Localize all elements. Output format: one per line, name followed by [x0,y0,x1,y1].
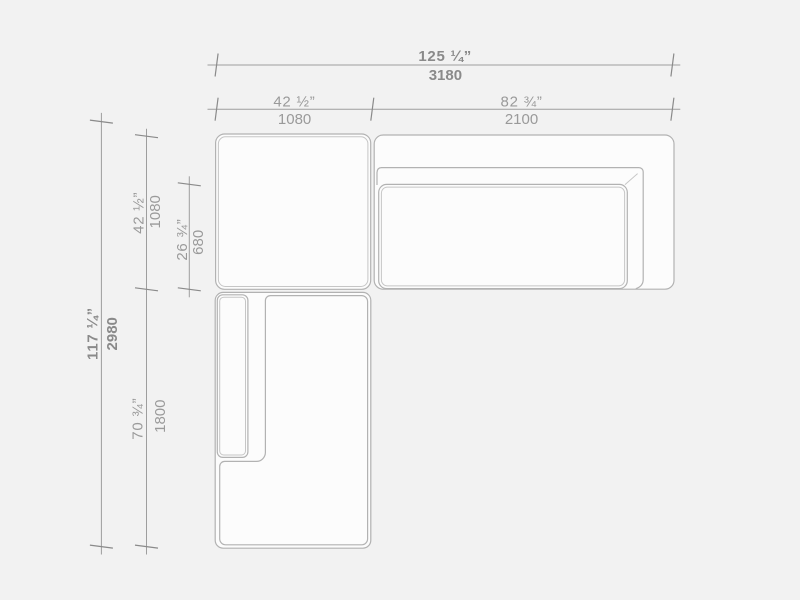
svg-text:680: 680 [190,230,207,255]
svg-text:117 ¼”: 117 ¼” [85,307,102,360]
svg-text:2980: 2980 [104,317,121,350]
svg-text:1080: 1080 [278,111,311,128]
svg-text:42 ½”: 42 ½” [273,93,315,110]
svg-text:1800: 1800 [152,400,169,433]
svg-text:26 ¾”: 26 ¾” [174,219,191,261]
svg-text:70 ¾”: 70 ¾” [130,398,147,440]
svg-text:3180: 3180 [429,67,462,84]
svg-text:1080: 1080 [147,195,164,228]
svg-text:42 ½”: 42 ½” [130,192,147,234]
svg-text:125 ¼”: 125 ¼” [418,48,472,65]
svg-text:82 ¾”: 82 ¾” [501,93,543,110]
svg-text:2100: 2100 [505,111,538,128]
